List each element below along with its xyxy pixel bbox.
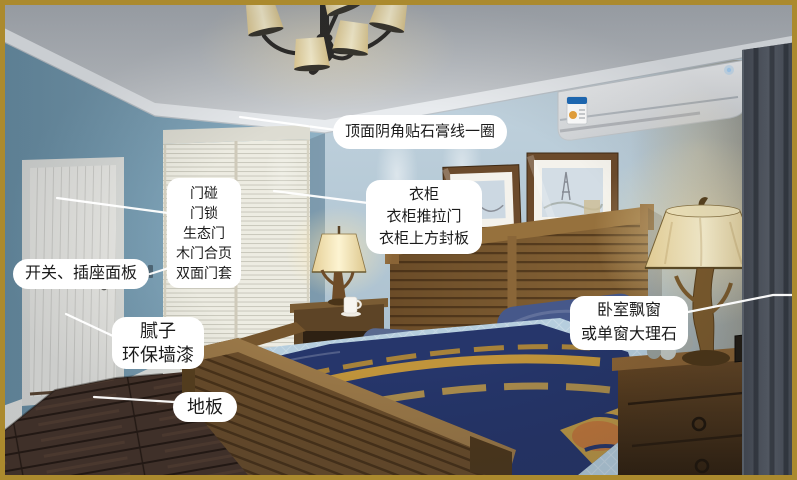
annotation-floor: 地板 (173, 392, 237, 422)
annotation-text: 地板 (187, 396, 223, 418)
annotation-text: 木门合页 (176, 243, 232, 263)
annotation-text: 衣柜 (379, 184, 469, 206)
annotation-text: 卧室飘窗 (581, 299, 677, 323)
annotation-text: 开关、插座面板 (25, 264, 137, 284)
annotation-text: 门锁 (176, 203, 232, 223)
annotation-text: 双面门套 (176, 263, 232, 283)
annotation-text: 或单窗大理石 (581, 323, 677, 347)
annotation-ceiling-molding: 顶面阴角贴石膏线一圈 (333, 115, 507, 149)
annotation-wall-finish: 腻子 环保墙漆 (112, 317, 204, 369)
annotation-text: 腻子 (122, 319, 194, 343)
annotation-switch-socket: 开关、插座面板 (13, 259, 149, 289)
annotation-text: 生态门 (176, 223, 232, 243)
annotation-text: 顶面阴角贴石膏线一圈 (345, 122, 495, 142)
annotation-text: 衣柜推拉门 (379, 206, 469, 228)
annotation-text: 门碰 (176, 183, 232, 203)
annotation-bay-window: 卧室飘窗 或单窗大理石 (570, 296, 688, 350)
annotation-text: 衣柜上方封板 (379, 228, 469, 250)
annotation-wardrobe: 衣柜 衣柜推拉门 衣柜上方封板 (366, 180, 482, 254)
annotation-text: 环保墙漆 (122, 343, 194, 367)
annotation-door: 门碰 门锁 生态门 木门合页 双面门套 (167, 178, 241, 288)
annotated-bedroom-photo: 顶面阴角贴石膏线一圈 门碰 门锁 生态门 木门合页 双面门套 开关、插座面板 腻… (0, 0, 797, 480)
